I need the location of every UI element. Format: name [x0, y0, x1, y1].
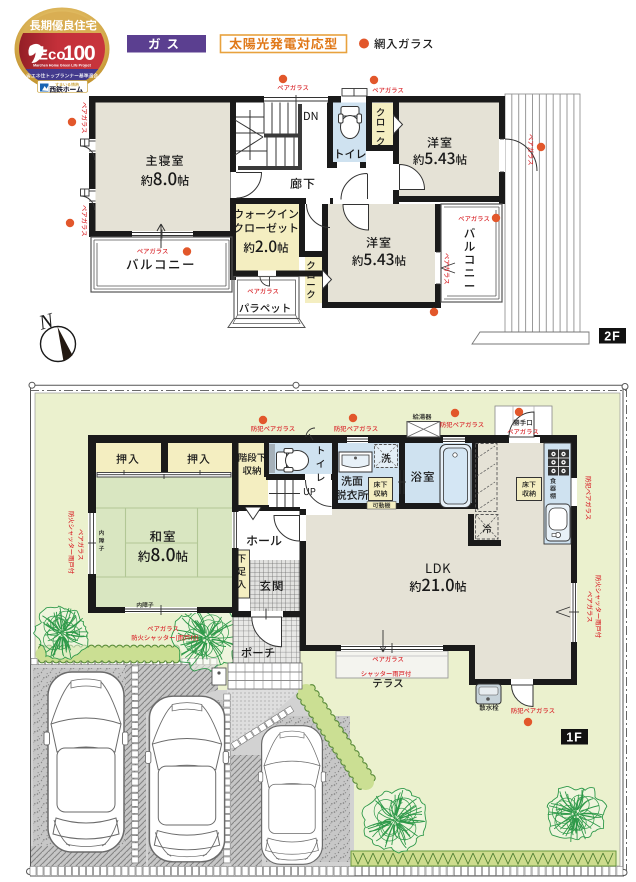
svg-text:Eco: Eco	[38, 47, 66, 64]
svg-text:N: N	[35, 308, 57, 335]
svg-text:100: 100	[63, 42, 95, 65]
svg-text:Marchen Home Green Life Projec: Marchen Home Green Life Project	[33, 64, 92, 68]
svg-text:2F: 2F	[604, 330, 621, 344]
svg-text:1F: 1F	[566, 731, 583, 745]
